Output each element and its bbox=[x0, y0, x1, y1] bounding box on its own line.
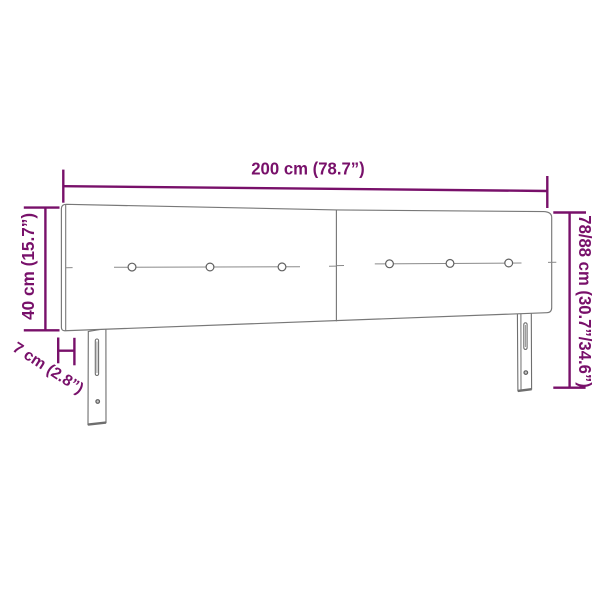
svg-text:78/88 cm (30.7”/34.6”): 78/88 cm (30.7”/34.6”) bbox=[575, 215, 595, 387]
svg-text:200 cm (78.7”): 200 cm (78.7”) bbox=[251, 159, 365, 179]
svg-text:40 cm (15.7”): 40 cm (15.7”) bbox=[18, 213, 38, 320]
